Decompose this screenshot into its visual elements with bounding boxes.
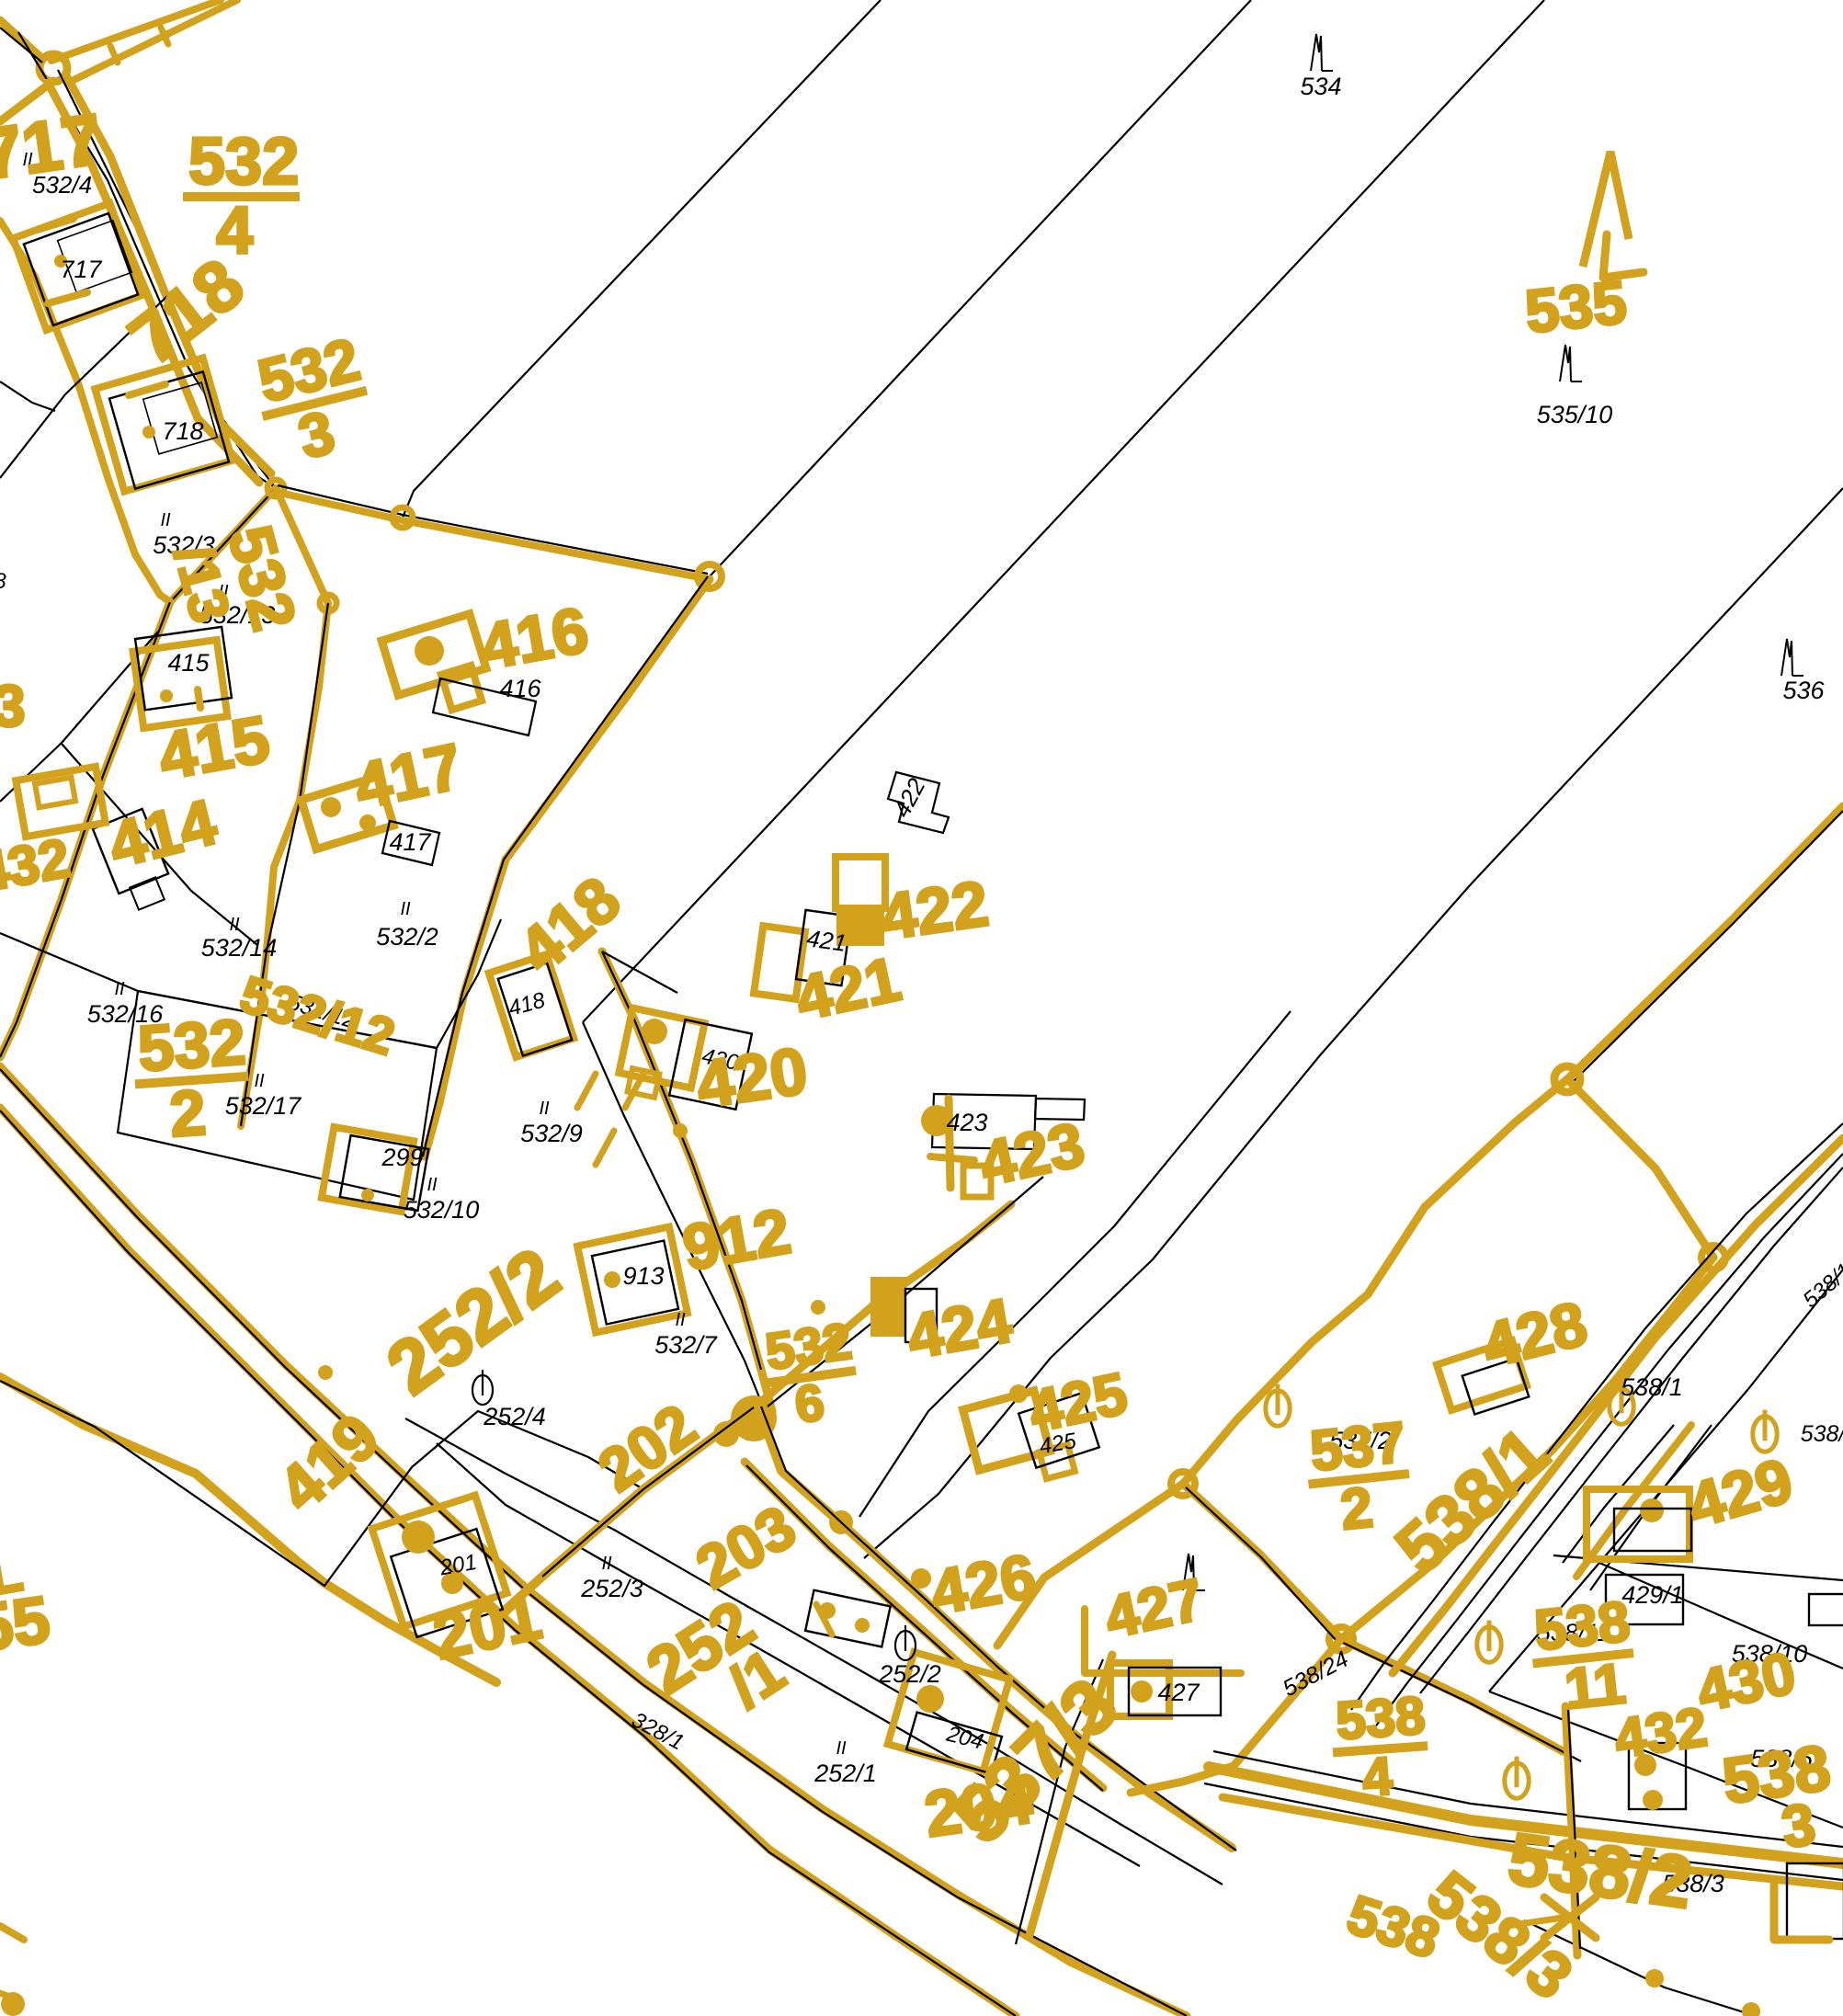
svg-text:532/14: 532/14 (201, 934, 278, 962)
svg-text:11: 11 (1562, 1652, 1628, 1721)
svg-text:252/2: 252/2 (878, 1660, 941, 1688)
svg-text:II: II (675, 1310, 686, 1330)
svg-text:538/1: 538/1 (1621, 1373, 1683, 1401)
svg-text:421: 421 (805, 924, 848, 957)
svg-text:535: 535 (1522, 268, 1630, 346)
svg-text:II: II (400, 899, 411, 919)
svg-text:538: 538 (1718, 1731, 1835, 1817)
svg-text:718: 718 (162, 417, 203, 445)
svg-text:538/9: 538/9 (1801, 1421, 1843, 1447)
svg-text:417: 417 (389, 828, 431, 856)
svg-text:II: II (160, 510, 171, 530)
svg-text:II: II (836, 1738, 847, 1759)
svg-text:532: 532 (136, 1006, 248, 1085)
svg-text:717: 717 (60, 256, 102, 283)
svg-text:252/1: 252/1 (813, 1760, 877, 1787)
svg-text:532/7: 532/7 (654, 1331, 718, 1359)
svg-text:II: II (114, 979, 125, 999)
svg-text:II: II (539, 1099, 550, 1119)
svg-text:2: 2 (1337, 1475, 1376, 1542)
svg-text:415: 415 (167, 649, 210, 677)
svg-text:4: 4 (216, 194, 253, 268)
svg-text:913: 913 (622, 1262, 664, 1290)
svg-text:422: 422 (876, 867, 993, 952)
svg-text:427: 427 (1157, 1679, 1200, 1706)
svg-text:532/17: 532/17 (225, 1092, 302, 1120)
svg-text:II: II (427, 1175, 438, 1195)
svg-text:538: 538 (1334, 1685, 1427, 1751)
svg-text:II: II (254, 1071, 265, 1091)
svg-text:534: 534 (1300, 73, 1341, 100)
svg-text:252/3: 252/3 (580, 1575, 643, 1602)
svg-text:536: 536 (1782, 677, 1825, 704)
svg-text:II: II (229, 915, 240, 935)
svg-text:4: 4 (1360, 1746, 1394, 1807)
svg-text:429/1: 429/1 (1621, 1581, 1684, 1609)
svg-text:532: 532 (188, 125, 299, 199)
svg-text:2: 2 (167, 1076, 208, 1151)
svg-text:252/4: 252/4 (483, 1403, 546, 1430)
svg-text:532/10: 532/10 (404, 1196, 480, 1224)
svg-text:8: 8 (0, 569, 6, 594)
svg-text:420: 420 (692, 1034, 812, 1122)
svg-text:532/9: 532/9 (520, 1120, 583, 1147)
svg-text:535/10: 535/10 (1537, 401, 1613, 428)
svg-text:299: 299 (381, 1144, 423, 1171)
svg-text:II: II (601, 1554, 612, 1574)
svg-text:717: 717 (0, 98, 107, 195)
svg-text:532/2: 532/2 (376, 923, 438, 951)
svg-text:3: 3 (0, 673, 26, 739)
